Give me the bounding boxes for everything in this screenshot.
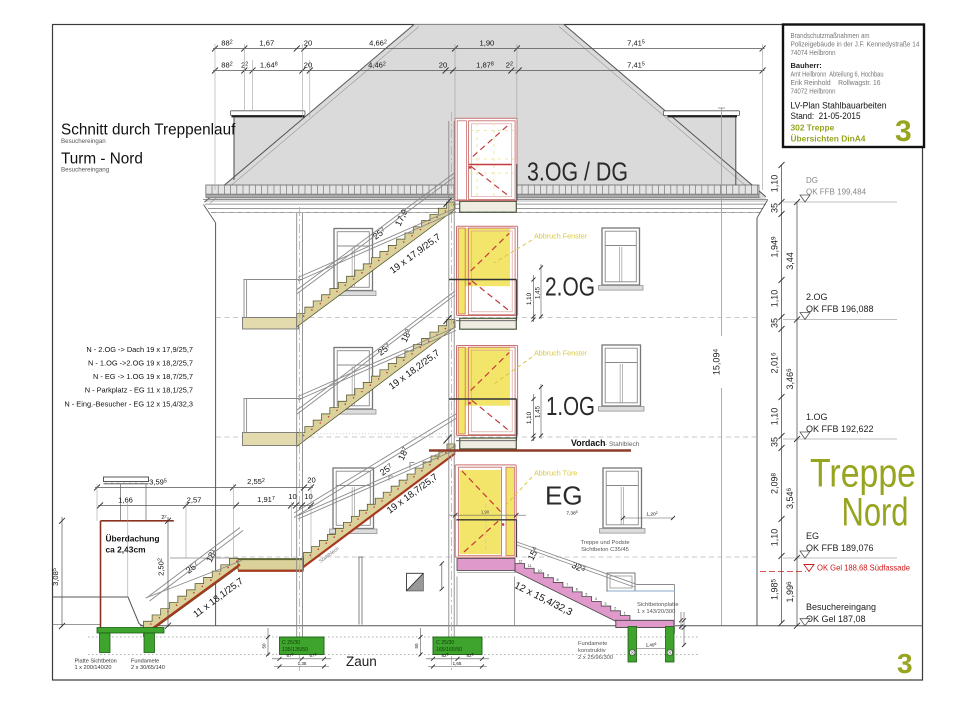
svg-text:1,10: 1,10 (770, 408, 780, 426)
svg-text:3,44: 3,44 (785, 252, 795, 270)
svg-text:DG: DG (806, 176, 818, 185)
svg-text:2,57: 2,57 (187, 496, 202, 505)
svg-text:2.OG: 2.OG (806, 292, 828, 302)
svg-text:Abbruch Türe: Abbruch Türe (534, 469, 577, 478)
svg-text:N - 1.OG ->2.OG 19 x 18,2/25,: N - 1.OG ->2.OG 19 x 18,2/25,7 (88, 359, 193, 368)
svg-text:konstruktiv: konstruktiv (578, 648, 606, 654)
svg-text:1,66: 1,66 (118, 496, 133, 505)
svg-text:50: 50 (414, 643, 419, 649)
svg-text:12: 12 (518, 559, 522, 563)
svg-text:1,10: 1,10 (770, 529, 780, 547)
svg-text:Sichtbetonplatte: Sichtbetonplatte (637, 602, 679, 608)
svg-text:74072 Heilbronn: 74072 Heilbronn (791, 87, 836, 96)
svg-text:Fundamete: Fundamete (131, 659, 159, 665)
svg-text:7: 7 (566, 583, 568, 587)
svg-text:Platte Sichtbeton: Platte Sichtbeton (75, 659, 117, 665)
svg-text:Überdachung: Überdachung (106, 534, 160, 544)
svg-text:20: 20 (439, 61, 447, 70)
svg-text:50: 50 (262, 643, 267, 649)
svg-text:1 x 143/20/300: 1 x 143/20/300 (637, 609, 675, 615)
svg-text:1,90: 1,90 (480, 39, 495, 48)
svg-text:1,45: 1,45 (534, 405, 541, 418)
svg-text:35: 35 (770, 318, 780, 328)
svg-text:1,10: 1,10 (526, 292, 533, 305)
svg-text:Sichtbeton C35/45: Sichtbeton C35/45 (581, 547, 629, 553)
svg-text:5: 5 (585, 592, 587, 596)
svg-text:Zaun: Zaun (346, 654, 377, 669)
svg-text:N - EG -> 1.OG 19 x 18,7/25,7: N - EG -> 1.OG 19 x 18,7/25,7 (93, 372, 193, 381)
svg-text:OK FFB 189,076: OK FFB 189,076 (806, 543, 874, 553)
svg-text:OK Gel 188,68 Südfassade: OK Gel 188,68 Südfassade (817, 563, 910, 573)
svg-text:ca 2,43cm: ca 2,43cm (106, 545, 146, 555)
svg-text:Besuchereingang: Besuchereingang (806, 602, 876, 612)
svg-text:3.OG / DG: 3.OG / DG (527, 157, 628, 187)
svg-text:1.OG: 1.OG (546, 391, 595, 421)
svg-text:- Stahlblech: - Stahlblech (605, 441, 640, 448)
svg-text:2 x 30/65/140: 2 x 30/65/140 (131, 665, 165, 671)
svg-text:EG: EG (806, 531, 819, 541)
svg-text:2: 2 (614, 607, 616, 611)
svg-text:6: 6 (576, 588, 578, 592)
svg-text:302 Treppe: 302 Treppe (791, 123, 835, 133)
svg-text:8: 8 (557, 578, 559, 582)
svg-text:10: 10 (537, 569, 541, 573)
svg-text:1 x 200/140/20: 1 x 200/140/20 (75, 665, 112, 671)
svg-text:Schnitt durch Treppenlauf: Schnitt durch Treppenlauf (61, 122, 236, 139)
svg-text:C 25/30: C 25/30 (282, 640, 300, 646)
svg-text:3: 3 (897, 648, 913, 679)
svg-text:1,10: 1,10 (526, 411, 533, 424)
svg-text:Nord: Nord (842, 491, 909, 535)
svg-text:1,10: 1,10 (770, 175, 780, 193)
svg-text:Treppe und Podste: Treppe und Podste (580, 540, 629, 546)
svg-text:N - Parkplatz - EG 11 x 18,1/: N - Parkplatz - EG 11 x 18,1/25,7 (85, 386, 193, 395)
svg-text:Besuchereingang: Besuchereingang (61, 167, 110, 174)
svg-text:20: 20 (307, 476, 315, 485)
svg-text:OK Gel 187,08: OK Gel 187,08 (806, 614, 866, 624)
svg-text:1.OG: 1.OG (806, 412, 828, 422)
svg-text:35: 35 (770, 203, 780, 213)
svg-text:1,45: 1,45 (534, 286, 541, 299)
svg-text:1,35: 1,35 (298, 661, 307, 666)
svg-text:74074 Heilbronn: 74074 Heilbronn (791, 48, 836, 57)
svg-text:OK FFB 192,622: OK FFB 192,622 (806, 424, 874, 434)
svg-text:2.OG: 2.OG (545, 272, 595, 302)
svg-text:4: 4 (595, 597, 597, 601)
svg-text:EG: EG (545, 481, 583, 511)
svg-text:165/165/50: 165/165/50 (436, 647, 462, 653)
svg-text:LV-Plan Stahlbauarbeiten: LV-Plan Stahlbauarbeiten (791, 101, 887, 112)
svg-text:1,67: 1,67 (259, 39, 274, 48)
svg-text:OK FFB 199,484: OK FFB 199,484 (806, 188, 867, 197)
svg-text:C 25/30: C 25/30 (436, 640, 454, 646)
svg-text:9: 9 (547, 574, 549, 578)
svg-text:Abbruch Fenster: Abbruch Fenster (534, 349, 588, 358)
svg-text:35: 35 (770, 437, 780, 447)
svg-text:3: 3 (604, 602, 606, 606)
svg-text:20: 20 (304, 61, 312, 70)
svg-text:Turm - Nord: Turm - Nord (61, 151, 143, 168)
svg-text:1: 1 (624, 611, 626, 615)
svg-text:3: 3 (895, 115, 912, 148)
svg-text:N - 2.OG -> Dach 19 x 17,9/25: N - 2.OG -> Dach 19 x 17,9/25,7 (86, 345, 193, 354)
svg-text:10: 10 (304, 492, 312, 501)
svg-text:Vordach: Vordach (571, 438, 606, 448)
svg-text:1,10: 1,10 (770, 290, 780, 308)
svg-text:Fundamete: Fundamete (578, 641, 607, 647)
svg-text:OK FFB 196,088: OK FFB 196,088 (806, 304, 874, 314)
svg-text:Übersichten DinA4: Übersichten DinA4 (791, 134, 866, 144)
svg-text:11: 11 (528, 564, 532, 568)
svg-text:Treppe: Treppe (810, 452, 916, 496)
svg-text:Abbruch Fenster: Abbruch Fenster (534, 232, 588, 241)
svg-text:Besuchereingan: Besuchereingan (61, 138, 106, 145)
svg-text:10: 10 (288, 492, 296, 501)
svg-text:1,65: 1,65 (453, 661, 462, 666)
svg-text:N - Eing.-Besucher - EG 12 x 1: N - Eing.-Besucher - EG 12 x 15,4/32,3 (64, 400, 193, 409)
svg-text:Stand: 21-05-2015: Stand: 21-05-2015 (791, 111, 861, 122)
svg-text:2 x 25/96/300: 2 x 25/96/300 (578, 655, 613, 661)
svg-text:20: 20 (304, 39, 312, 48)
svg-text:1,90: 1,90 (481, 510, 490, 515)
